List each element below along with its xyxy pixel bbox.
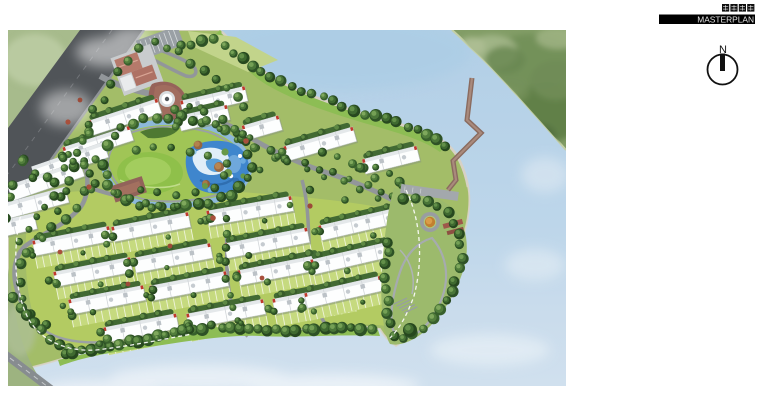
svg-text:MASTERPLAN: MASTERPLAN xyxy=(697,15,754,25)
